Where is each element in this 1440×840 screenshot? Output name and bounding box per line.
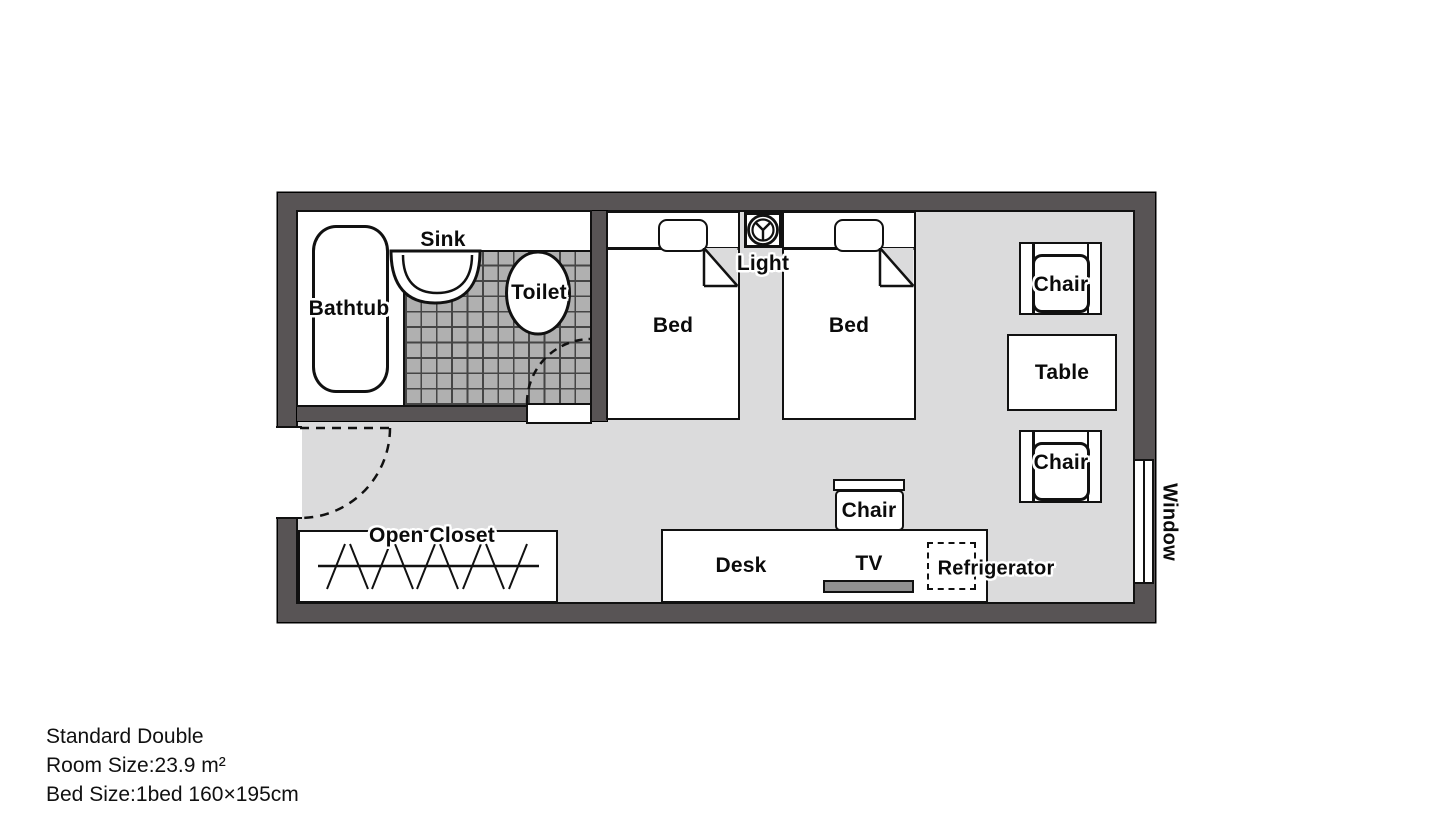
window-pane-line xyxy=(1143,461,1146,582)
bed-right-label: Bed xyxy=(829,314,869,338)
bed-size: Bed Size:1bed 160×195cm xyxy=(46,780,299,809)
room-size: Room Size:23.9 m² xyxy=(46,751,299,780)
chair-top-label: Chair xyxy=(1034,273,1089,297)
chair-bottom-label: Chair xyxy=(1034,451,1089,475)
floor-plan-page: Bathtub Sink Toilet Bed Bed Light Chair … xyxy=(0,0,1440,840)
bathroom-door-opening xyxy=(526,403,592,424)
refrigerator-label: Refrigerator xyxy=(938,558,1055,581)
bed-left-label: Bed xyxy=(653,314,693,338)
tv-label: TV xyxy=(855,552,882,576)
window-label: Window xyxy=(1158,483,1181,561)
toilet-label: Toilet xyxy=(511,281,567,305)
desk-label: Desk xyxy=(715,554,766,578)
entrance-door-opening xyxy=(276,426,302,519)
ceiling-light xyxy=(744,212,782,248)
room-info: Standard Double Room Size:23.9 m² Bed Si… xyxy=(46,722,299,809)
bed-left-pillow xyxy=(658,219,708,252)
tv xyxy=(823,580,914,593)
bathtub-label: Bathtub xyxy=(309,297,390,321)
table-label: Table xyxy=(1035,361,1089,385)
sink-label: Sink xyxy=(420,228,465,252)
bed-right-pillow xyxy=(834,219,884,252)
light-label: Light xyxy=(737,252,789,276)
open-closet-label: Open Closet xyxy=(369,524,495,548)
bathroom-tile-floor xyxy=(403,250,590,405)
desk-chair-label: Chair xyxy=(842,499,897,523)
window xyxy=(1133,459,1154,584)
room-type: Standard Double xyxy=(46,722,299,751)
